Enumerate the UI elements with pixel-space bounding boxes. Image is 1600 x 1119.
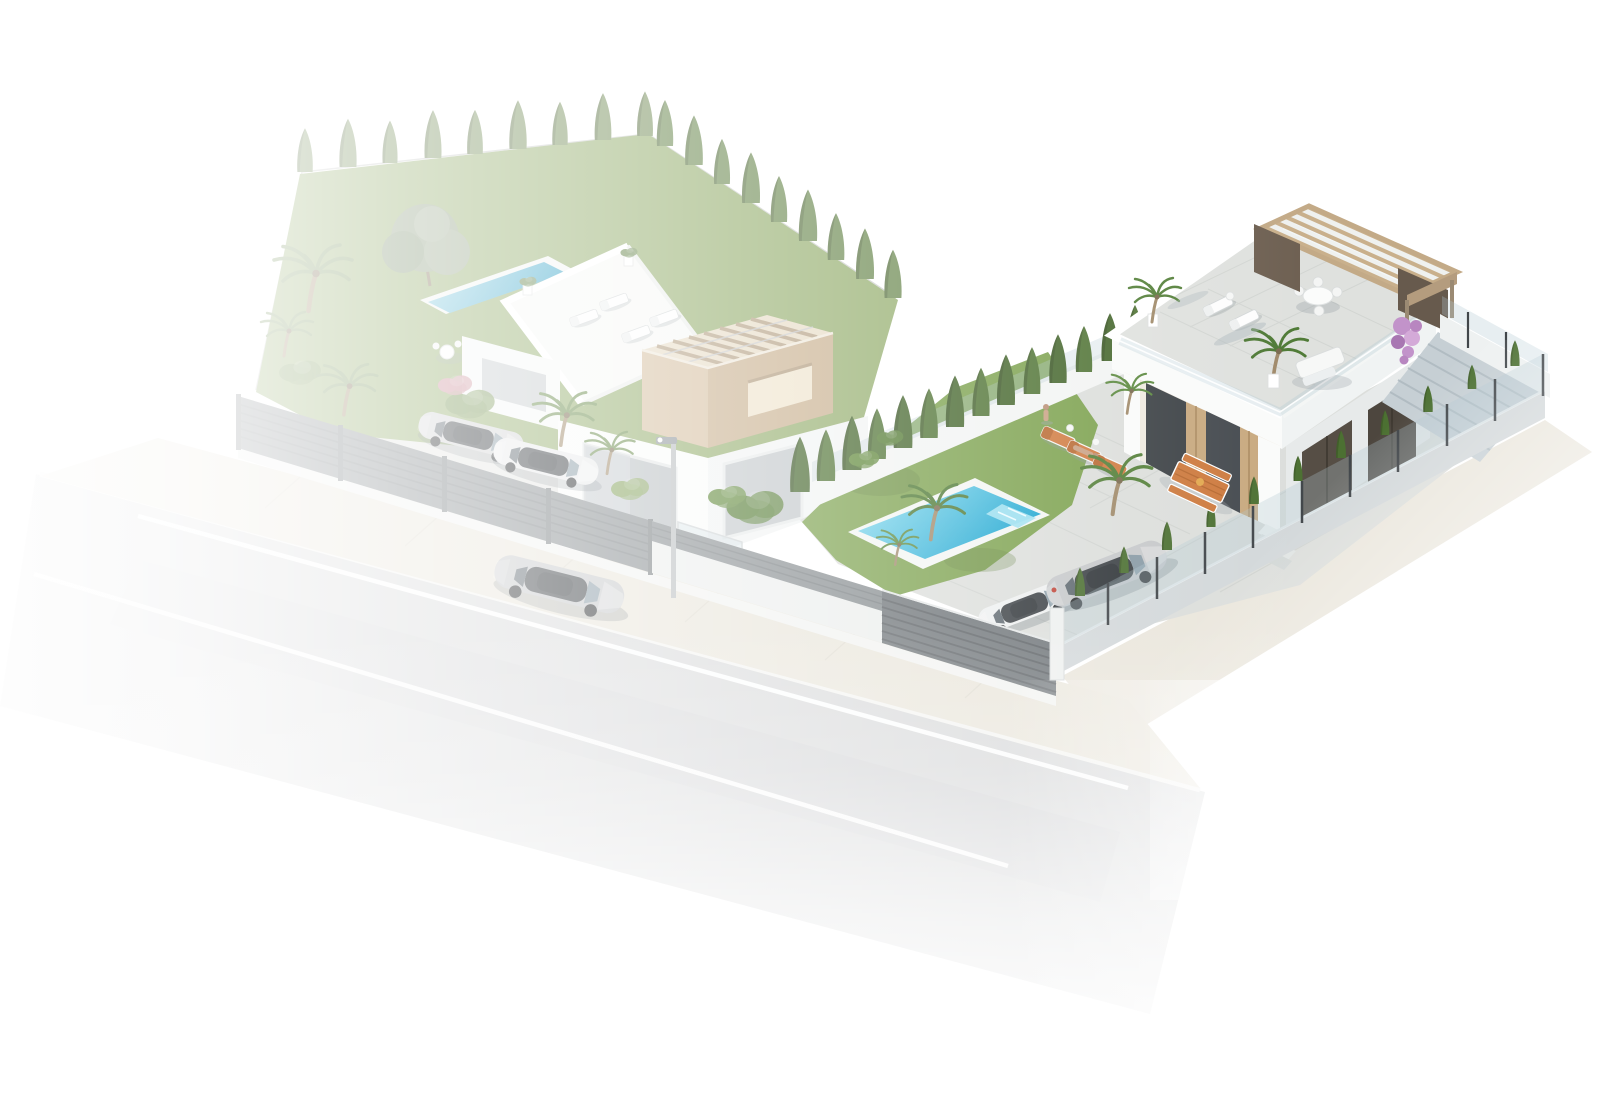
white-fade-overlay: [0, 0, 1600, 1119]
villa-aerial-render: [0, 0, 1600, 1119]
render-canvas: [0, 0, 1600, 1119]
